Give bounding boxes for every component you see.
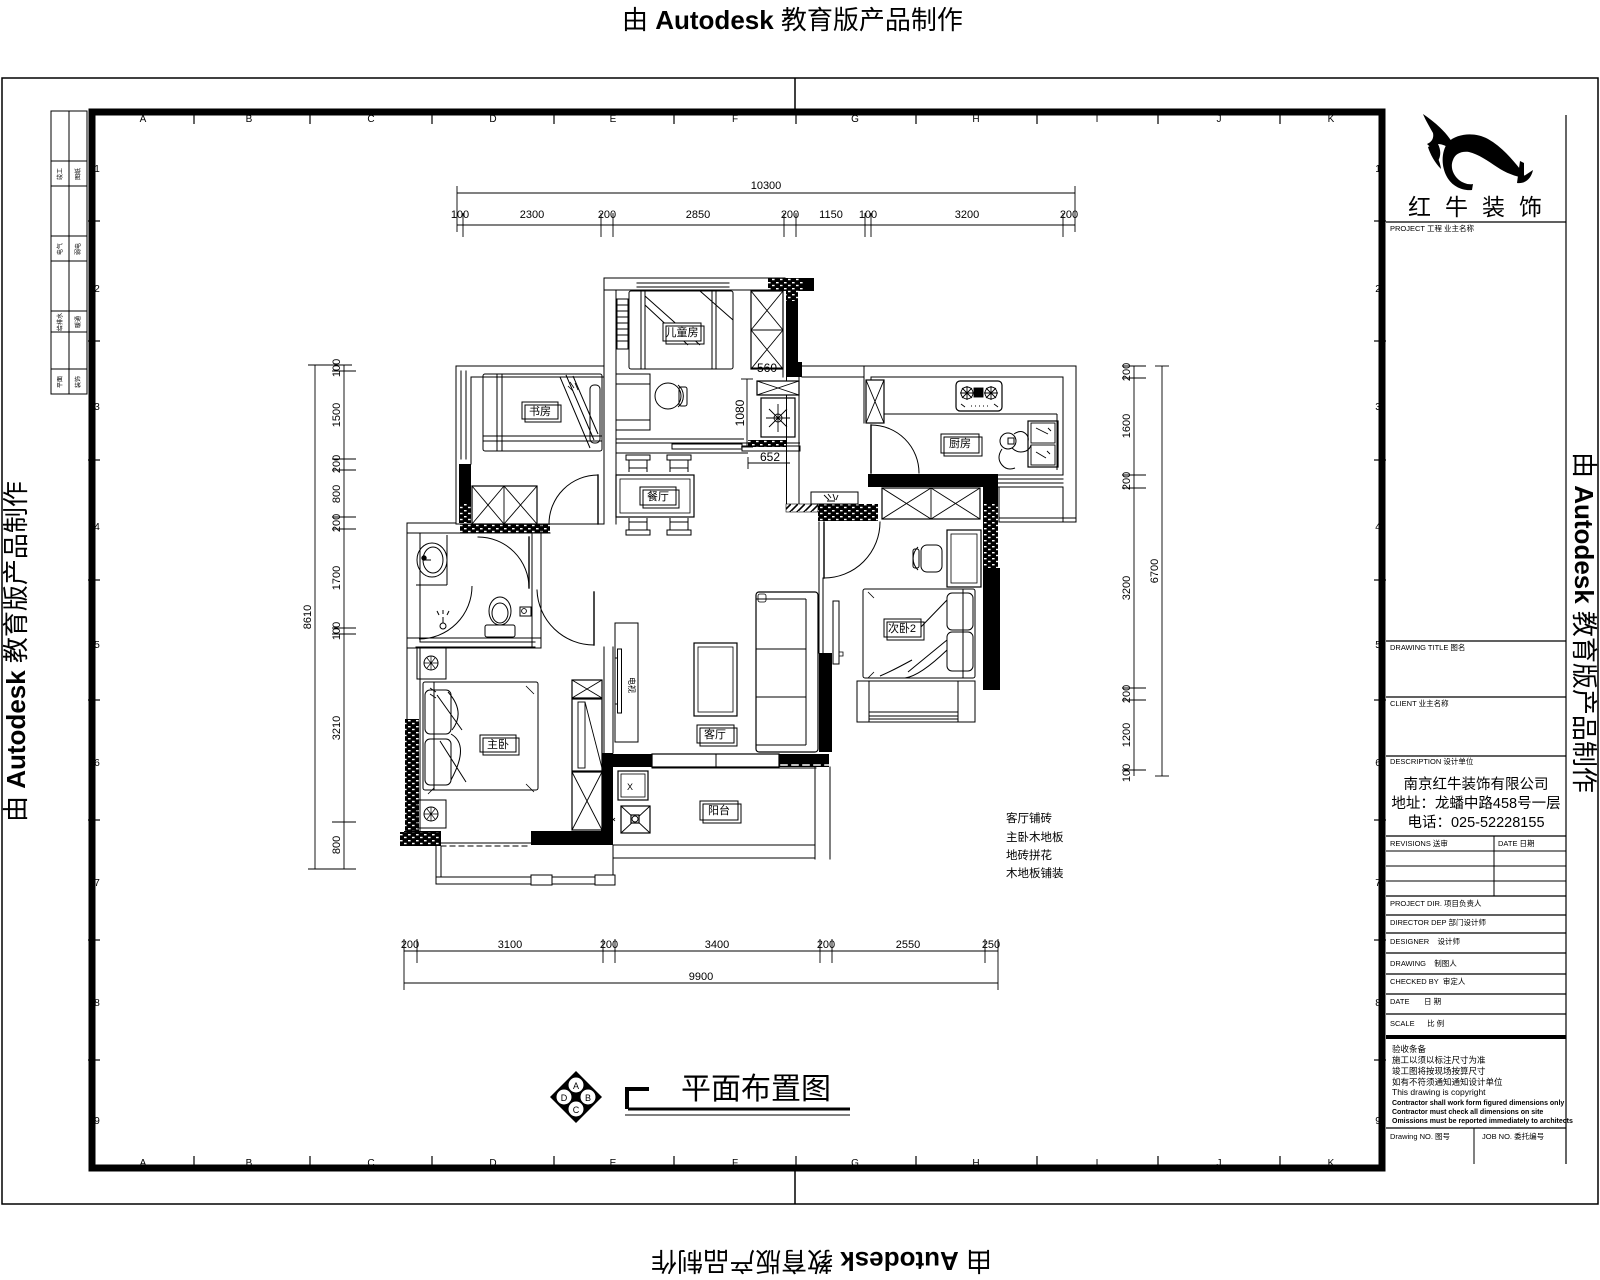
- svg-text:C: C: [367, 114, 374, 125]
- svg-text:2850: 2850: [686, 209, 710, 221]
- svg-text:竣工: 竣工: [56, 168, 64, 180]
- svg-text:1150: 1150: [819, 209, 843, 221]
- svg-text:由 Autodesk 教育版产品制作: 由 Autodesk 教育版产品制作: [1569, 452, 1599, 793]
- svg-text:1: 1: [94, 164, 100, 175]
- svg-text:施工以须以标注尺寸为准: 施工以须以标注尺寸为准: [1392, 1055, 1486, 1065]
- svg-text:G: G: [851, 1158, 859, 1169]
- svg-text:红牛装饰: 红牛装饰: [1408, 194, 1556, 220]
- svg-text:暖通: 暖通: [74, 316, 82, 328]
- svg-text:2300: 2300: [520, 209, 544, 221]
- svg-text:1200: 1200: [1121, 723, 1133, 747]
- svg-text:DATE 日 期: DATE 日 期: [1390, 997, 1441, 1006]
- svg-text:J: J: [1217, 1158, 1222, 1169]
- svg-text:DRAWING TITLE 图名: DRAWING TITLE 图名: [1390, 642, 1465, 652]
- svg-text:CLIENT 业主名称: CLIENT 业主名称: [1390, 698, 1449, 708]
- svg-text:书房: 书房: [529, 405, 551, 418]
- svg-text:2: 2: [1375, 284, 1381, 295]
- svg-text:9900: 9900: [689, 971, 713, 983]
- svg-text:200: 200: [1121, 685, 1133, 703]
- svg-text:200: 200: [1121, 472, 1133, 490]
- svg-text:DESCRIPTION 设计单位: DESCRIPTION 设计单位: [1390, 756, 1474, 766]
- svg-text:地址：龙蟠中路458号一层: 地址：龙蟠中路458号一层: [1391, 795, 1560, 812]
- svg-text:PROJECT 工程 业主名称: PROJECT 工程 业主名称: [1390, 223, 1475, 233]
- svg-text:主卧木地板: 主卧木地板: [1006, 830, 1064, 844]
- svg-text:200: 200: [1060, 209, 1078, 221]
- svg-text:B: B: [246, 114, 253, 125]
- svg-text:9: 9: [1375, 1116, 1381, 1127]
- svg-text:200: 200: [598, 209, 616, 221]
- svg-text:DRAWING 制图人: DRAWING 制图人: [1390, 958, 1457, 968]
- svg-text:1700: 1700: [331, 566, 343, 590]
- svg-text:2: 2: [94, 284, 100, 295]
- svg-text:100: 100: [331, 622, 343, 640]
- svg-text:电话：025-52228155: 电话：025-52228155: [1407, 814, 1544, 831]
- svg-text:Omissions must be reported imm: Omissions must be reported immediately t…: [1392, 1118, 1573, 1125]
- svg-text:1080: 1080: [733, 399, 747, 426]
- svg-text:9: 9: [94, 1116, 100, 1127]
- svg-text:4: 4: [1375, 522, 1381, 533]
- svg-text:给排水: 给排水: [56, 313, 64, 331]
- svg-text:8: 8: [1375, 998, 1381, 1009]
- svg-text:A: A: [140, 1158, 147, 1169]
- svg-text:1: 1: [1375, 164, 1381, 175]
- svg-text:652: 652: [760, 450, 780, 464]
- svg-text:Drawing NO. 图号: Drawing NO. 图号: [1390, 1132, 1450, 1141]
- svg-text:8: 8: [94, 998, 100, 1009]
- svg-text:B: B: [585, 1093, 591, 1103]
- svg-text:验收条备: 验收条备: [1392, 1044, 1427, 1054]
- svg-text:200: 200: [401, 939, 419, 951]
- svg-text:阳台: 阳台: [708, 803, 730, 817]
- svg-text:200: 200: [1121, 363, 1133, 381]
- svg-text:图纸: 图纸: [74, 168, 82, 180]
- svg-text:客厅铺砖: 客厅铺砖: [1006, 811, 1052, 825]
- svg-text:E: E: [610, 1158, 617, 1169]
- svg-text:H: H: [972, 114, 979, 125]
- svg-text:次卧2: 次卧2: [888, 621, 916, 635]
- svg-text:200: 200: [781, 209, 799, 221]
- svg-text:如有不符须通知通知设计单位: 如有不符须通知通知设计单位: [1392, 1077, 1503, 1087]
- svg-text:DATE 日期: DATE 日期: [1498, 839, 1535, 848]
- svg-text:200: 200: [331, 514, 343, 532]
- svg-text:This drawing is copyright: This drawing is copyright: [1392, 1087, 1486, 1097]
- svg-text:SCALE 比 例: SCALE 比 例: [1390, 1018, 1444, 1028]
- svg-text:4: 4: [94, 522, 100, 533]
- svg-text:Contractor must check all dime: Contractor must check all dimensions on …: [1392, 1109, 1543, 1116]
- svg-text:3400: 3400: [705, 939, 729, 951]
- svg-text:木地板铺装: 木地板铺装: [1006, 866, 1064, 880]
- svg-text:DESIGNER 设计师: DESIGNER 设计师: [1390, 936, 1461, 946]
- svg-text:餐厅: 餐厅: [647, 489, 669, 503]
- svg-text:主卧: 主卧: [487, 738, 509, 751]
- svg-text:竣工图将按现场按算尺寸: 竣工图将按现场按算尺寸: [1392, 1066, 1486, 1076]
- svg-text:250: 250: [982, 939, 1000, 951]
- svg-text:560: 560: [757, 361, 777, 375]
- svg-text:CHECKED BY 审定人: CHECKED BY 审定人: [1390, 976, 1466, 986]
- svg-text:100: 100: [1121, 764, 1133, 782]
- svg-text:由 Autodesk 教育版产品制作: 由 Autodesk 教育版产品制作: [1, 481, 31, 822]
- svg-text:客厅: 客厅: [704, 727, 726, 741]
- svg-text:由 Autodesk 教育版产品制作: 由 Autodesk 教育版产品制作: [651, 1246, 992, 1276]
- svg-text:E: E: [610, 114, 617, 125]
- svg-text:7: 7: [1375, 878, 1381, 889]
- svg-text:G: G: [851, 114, 859, 125]
- svg-text:200: 200: [600, 939, 618, 951]
- svg-text:JOB NO. 委托编号: JOB NO. 委托编号: [1482, 1131, 1544, 1141]
- svg-text:厨房: 厨房: [949, 437, 971, 450]
- svg-text:2550: 2550: [896, 939, 920, 951]
- svg-text:DIRECTOR DEP 部门设计师: DIRECTOR DEP 部门设计师: [1390, 917, 1486, 927]
- svg-text:200: 200: [331, 455, 343, 473]
- svg-text:B: B: [246, 1158, 253, 1169]
- svg-text:1500: 1500: [331, 403, 343, 427]
- svg-text:X: X: [627, 782, 633, 792]
- svg-text:地砖拼花: 地砖拼花: [1006, 848, 1052, 862]
- svg-text:南京红牛装饰有限公司: 南京红牛装饰有限公司: [1404, 776, 1549, 793]
- svg-text:6: 6: [94, 758, 100, 769]
- svg-text:弱电: 弱电: [74, 243, 82, 255]
- svg-text:平面: 平面: [57, 376, 64, 388]
- svg-text:5: 5: [94, 640, 100, 651]
- svg-text:I: I: [1096, 114, 1099, 125]
- svg-text:电气: 电气: [56, 243, 64, 255]
- svg-text:3200: 3200: [955, 209, 979, 221]
- svg-text:C: C: [573, 1105, 580, 1115]
- svg-text:6700: 6700: [1149, 559, 1161, 583]
- svg-text:A: A: [140, 114, 147, 125]
- svg-text:800: 800: [331, 485, 343, 503]
- svg-text:7: 7: [94, 878, 100, 889]
- svg-text:3100: 3100: [498, 939, 522, 951]
- svg-text:A: A: [573, 1081, 579, 1091]
- svg-text:Contractor shall work form fig: Contractor shall work form figured dimen…: [1392, 1100, 1564, 1107]
- svg-text:D: D: [489, 1158, 496, 1169]
- svg-text:电视: 电视: [627, 677, 637, 693]
- svg-text:1600: 1600: [1121, 414, 1133, 438]
- svg-text:REVISIONS 送审: REVISIONS 送审: [1390, 838, 1448, 848]
- svg-text:儿童房: 儿童房: [666, 325, 699, 339]
- svg-text:PROJECT DIR. 项目负责人: PROJECT DIR. 项目负责人: [1390, 898, 1482, 908]
- svg-text:装饰: 装饰: [74, 376, 82, 388]
- svg-text:I: I: [1096, 1158, 1099, 1169]
- svg-text:10300: 10300: [751, 180, 782, 192]
- svg-text:3: 3: [1375, 402, 1381, 413]
- svg-text:J: J: [1217, 114, 1222, 125]
- svg-text:3: 3: [94, 402, 100, 413]
- svg-text:D: D: [561, 1093, 568, 1103]
- svg-text:D: D: [489, 114, 496, 125]
- svg-text:800: 800: [331, 836, 343, 854]
- svg-text:平面布置图: 平面布置图: [681, 1073, 831, 1106]
- svg-text:K: K: [1328, 1158, 1335, 1169]
- svg-text:100: 100: [451, 209, 469, 221]
- svg-text:6: 6: [1375, 758, 1381, 769]
- svg-text:F: F: [732, 1158, 738, 1169]
- svg-text:100: 100: [859, 209, 877, 221]
- svg-text:3210: 3210: [331, 716, 343, 740]
- svg-text:100: 100: [331, 359, 343, 377]
- svg-text:由 Autodesk 教育版产品制作: 由 Autodesk 教育版产品制作: [622, 5, 963, 35]
- svg-text:F: F: [732, 114, 738, 125]
- svg-text:K: K: [1328, 114, 1335, 125]
- svg-text:3200: 3200: [1121, 576, 1133, 600]
- svg-text:H: H: [972, 1158, 979, 1169]
- svg-text:8610: 8610: [302, 605, 314, 629]
- svg-text:C: C: [367, 1158, 374, 1169]
- svg-text:5: 5: [1375, 640, 1381, 651]
- svg-text:200: 200: [817, 939, 835, 951]
